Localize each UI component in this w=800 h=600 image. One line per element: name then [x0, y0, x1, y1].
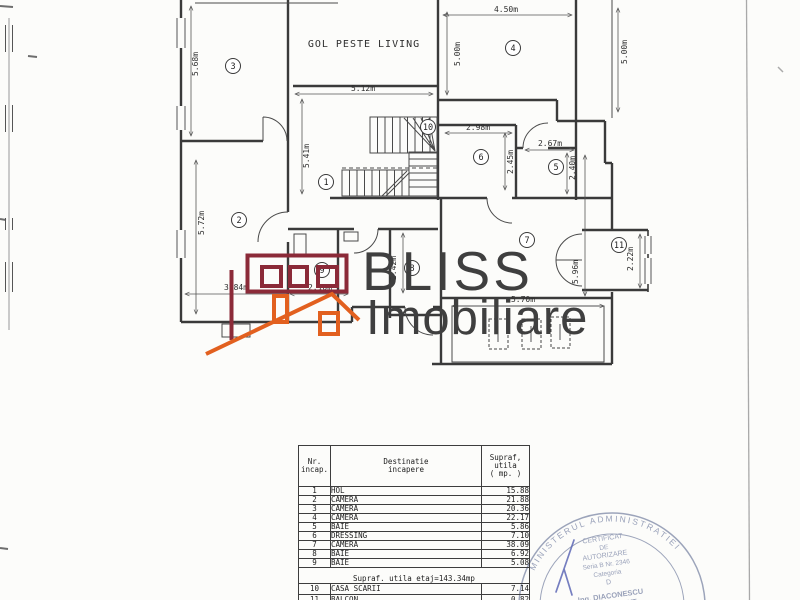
table-row: 10CASA SCARII7.14 — [299, 584, 530, 595]
certification-stamp: MINISTERUL ADMINISTRATIEI CERTIFICAT DE … — [507, 501, 717, 600]
header-nr: Nr. incap. — [299, 446, 331, 487]
stamp-line-categoria: Categoria — [593, 568, 622, 579]
scanned-floor-plan-page: 5.68m 5.72m 3.84m 2.10m 5.12m 5.41m 4.50… — [0, 0, 800, 600]
room-number-3: 3 — [226, 59, 241, 74]
pen-signature — [556, 540, 574, 595]
svg-text:1: 1 — [323, 178, 328, 188]
header-suprafata: Supraf, utila ( mp. ) — [482, 446, 530, 487]
room-number-1: 1 — [319, 175, 334, 190]
dim-room5-width: 2.67m — [538, 139, 562, 148]
dim-room2-height: 5.72m — [197, 211, 206, 235]
room-number-6: 6 — [474, 150, 489, 165]
logo-subtitle-text: Imobiliare — [366, 293, 588, 343]
stamp-line-certificat: CERTIFICAT — [582, 533, 624, 546]
subtotal-row: Supraf. utila etaj=143.34mp — [299, 568, 530, 584]
table-row: 9BAIE5.08 — [299, 559, 530, 568]
dim-room3-height: 5.68m — [191, 52, 200, 76]
dim-room2-width: 3.84m — [224, 283, 248, 292]
dim-room7-height: 5.96m — [571, 260, 580, 284]
header-destinatie: Destinatie incapere — [331, 446, 482, 487]
dim-room4-width: 4.50m — [494, 5, 518, 14]
svg-text:5: 5 — [553, 163, 558, 173]
room-areas-table: Nr. incap. Destinatie incapere Supraf, u… — [298, 445, 530, 600]
table-row: 11BALCON0.82 — [299, 595, 530, 600]
svg-text:10: 10 — [423, 123, 433, 133]
dim-hall-height: 5.41m — [302, 144, 311, 168]
dim-room4-height: 5.00m — [453, 42, 462, 66]
svg-text:4: 4 — [510, 44, 515, 54]
svg-text:11: 11 — [614, 241, 624, 251]
dim-balcony-height: 2.22m — [626, 247, 635, 271]
dim-room6-height: 2.45m — [506, 150, 515, 174]
open-space-label: GOL PESTE LIVING — [308, 39, 420, 50]
svg-text:6: 6 — [478, 153, 483, 163]
logo-house-icon — [206, 256, 359, 355]
stamp-line-de: DE — [599, 544, 610, 552]
room-number-2: 2 — [232, 213, 247, 228]
dim-room6-width: 2.98m — [466, 123, 490, 132]
dim-room5-height: 2.40m — [568, 156, 577, 180]
stamp-line-categoria-d: D — [606, 579, 612, 587]
svg-text:2: 2 — [236, 216, 241, 226]
svg-text:3: 3 — [230, 62, 235, 72]
dim-gol-width: 5.12m — [351, 84, 375, 93]
room-number-5: 5 — [549, 160, 564, 175]
dim-right-height: 5.00m — [620, 40, 629, 64]
room-number-10: 10 — [421, 120, 436, 135]
room-number-4: 4 — [506, 41, 521, 56]
room-number-11: 11 — [612, 238, 627, 253]
table-header-row: Nr. incap. Destinatie incapere Supraf, u… — [299, 446, 530, 487]
logo-brand-text: BLISS — [362, 246, 533, 296]
